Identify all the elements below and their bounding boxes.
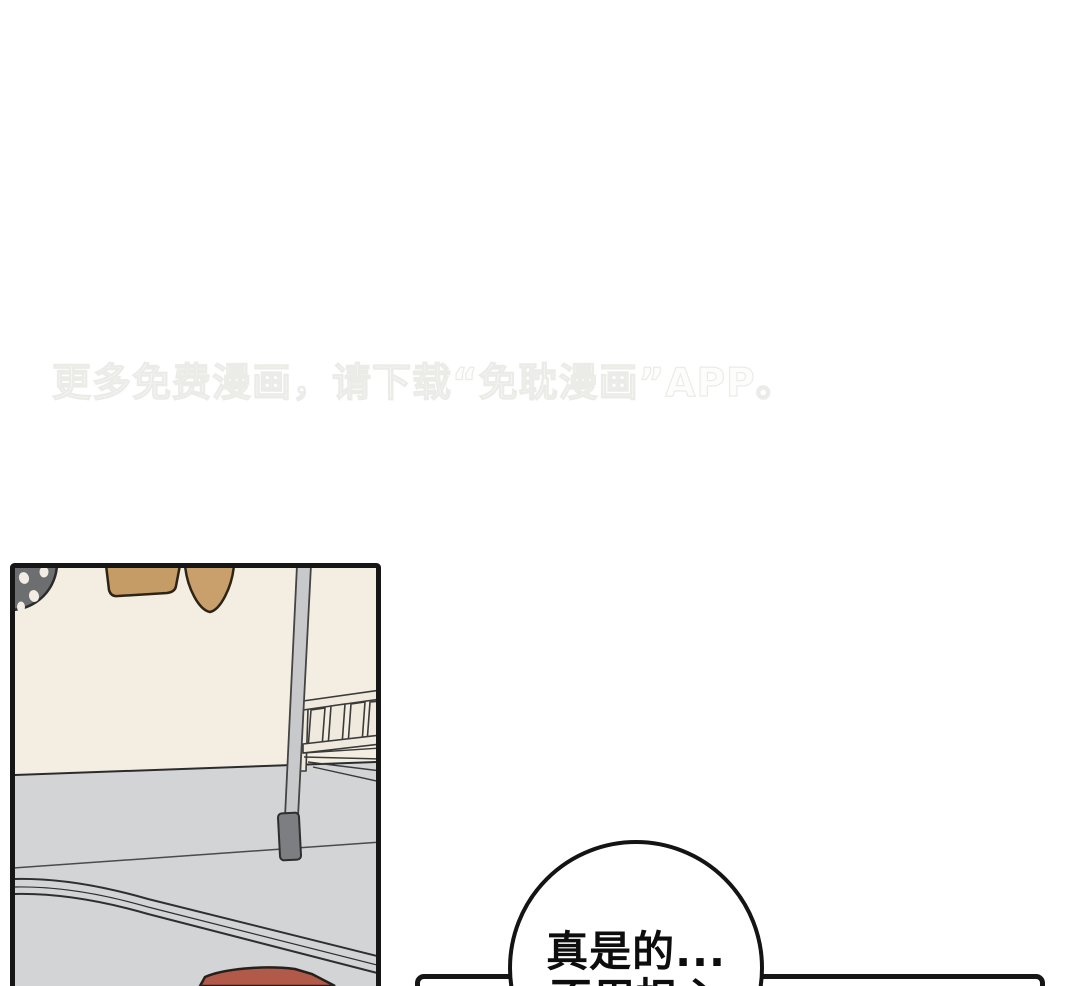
ball-hole [17,602,25,613]
watermark-text: 更多免费漫画，请下载“免耽漫画”APP。 [52,352,796,408]
speech-line-1: 真是的... [512,928,760,975]
room-floor [14,762,377,986]
speech-bubble: 真是的... 不用担心 [508,840,764,986]
room-panel [8,561,386,986]
hanging-item-left [106,565,180,596]
iv-pole-tip [278,812,301,860]
speech-bubble-text: 真是的... 不用担心 [512,928,760,986]
ball-hole [40,567,49,578]
comic-page: 更多免费漫画，请下载“免耽漫画”APP。 [0,0,1080,986]
speech-line-2: 不用担心 [512,975,760,986]
